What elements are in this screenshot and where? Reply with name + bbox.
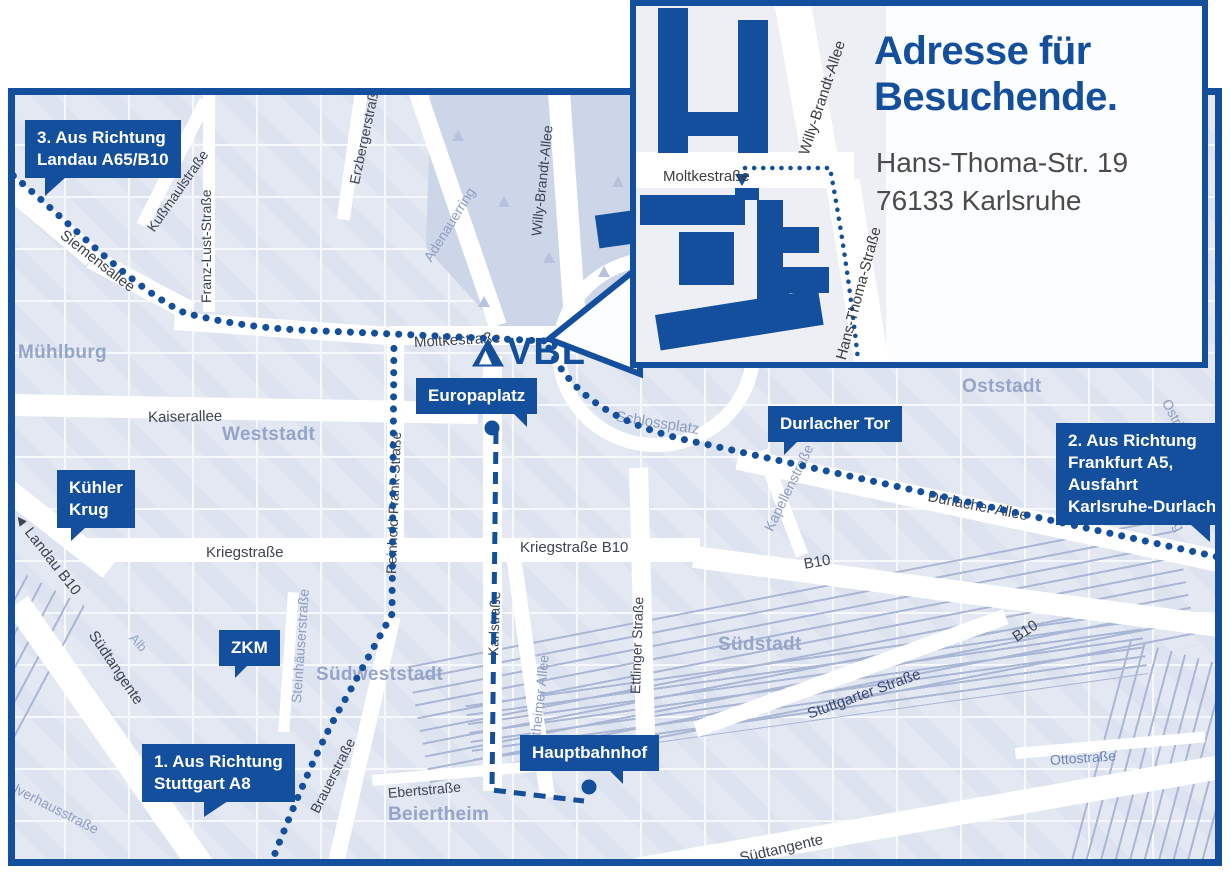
street-label-siemensallee: Siemensallee (57, 227, 138, 296)
callout-europaplatz-label: Europaplatz (428, 385, 525, 407)
callout-stuttgart-line1: 1. Aus Richtung (154, 751, 283, 773)
road-karlstrasse (483, 356, 502, 791)
inset-title-line1: Adresse für (874, 28, 1117, 74)
inset-street-label-moltkestrasse: Moltkestraße (663, 168, 750, 185)
callout-durlacher-tor: Durlacher Tor (768, 406, 902, 442)
road-moltkestrasse-west (174, 312, 403, 346)
callout-kuehler-krug: Kühler Krug (57, 470, 135, 528)
callout-durlacher-tor-label: Durlacher Tor (780, 413, 890, 435)
tree-icon (498, 196, 510, 207)
street-label-pulverhausstrasse: Pulverhausstraße (8, 773, 101, 837)
street-label-franz-lust-strasse: Franz-Lust-Straße (198, 189, 214, 303)
vbl-triangle-icon (472, 339, 504, 367)
river-label-alb: Alb (126, 630, 150, 654)
vbl-logo-text: VBL (507, 338, 586, 367)
inset-title: Adresse für Besuchende. (874, 28, 1117, 120)
street-label-ettlinger-strasse: Ettlinger Straße (627, 597, 646, 695)
inset-title-line2: Besuchende. (874, 74, 1117, 120)
area-label-suedstadt: Südstadt (718, 634, 802, 656)
area-label-beiertheim: Beiertheim (388, 804, 489, 826)
callout-hauptbahnhof: Hauptbahnhof (520, 735, 659, 771)
tree-icon (612, 176, 624, 187)
callout-stuttgart: 1. Aus Richtung Stuttgart A8 (142, 744, 295, 802)
road-brauerstrasse (324, 615, 400, 866)
inset-address: Hans-Thoma-Str. 19 76133 Karlsruhe (876, 144, 1128, 220)
street-label-karlstrasse: Karlstraße (485, 591, 503, 656)
street-label-kriegstrasse-b10: Kriegstraße B10 (520, 539, 628, 556)
callout-kuehler-krug-line2: Krug (69, 499, 123, 521)
callout-frankfurt-line2: Frankfurt A5, (1068, 452, 1216, 474)
inset-address-line1: Hans-Thoma-Str. 19 (876, 144, 1128, 182)
road-kaiserallee (8, 394, 478, 424)
area-label-oststadt: Oststadt (962, 376, 1041, 398)
tree-icon (543, 252, 555, 263)
tree-icon (452, 130, 464, 141)
callout-landau-line2: Landau A65/B10 (37, 149, 169, 171)
callout-zkm-label: ZKM (231, 637, 268, 659)
vbl-logo: VBL (472, 338, 586, 367)
callout-landau-line1: 3. Aus Richtung (37, 127, 169, 149)
tree-icon (478, 296, 490, 307)
callout-frankfurt-line4: Karlsruhe-Durlach (1068, 496, 1216, 518)
street-label-kaiserallee: Kaiserallee (148, 408, 223, 426)
callout-hauptbahnhof-label: Hauptbahnhof (532, 742, 647, 764)
callout-zkm: ZKM (219, 630, 280, 666)
callout-frankfurt: 2. Aus Richtung Frankfurt A5, Ausfahrt K… (1056, 423, 1222, 525)
area-label-suedweststadt: Südweststadt (316, 664, 443, 686)
inset-address-line2: 76133 Karlsruhe (876, 182, 1128, 220)
hauptbahnhof-stop-dot (582, 780, 597, 795)
street-label-kriegstrasse: Kriegstraße (206, 544, 284, 561)
callout-europaplatz: Europaplatz (416, 378, 537, 414)
area-label-weststadt: Weststadt (222, 424, 315, 446)
inset-address-panel: Moltkestraße Willy-Brandt-Allee Hans-Tho… (630, 0, 1208, 368)
callout-landau: 3. Aus Richtung Landau A65/B10 (25, 120, 181, 178)
callout-stuttgart-line2: Stuttgart A8 (154, 773, 283, 795)
callout-frankfurt-line1: 2. Aus Richtung (1068, 430, 1216, 452)
tree-icon (598, 266, 610, 277)
callout-frankfurt-line3: Ausfahrt (1068, 474, 1216, 496)
area-label-muehlburg: Mühlburg (18, 342, 107, 364)
callout-kuehler-krug-line1: Kühler (69, 477, 123, 499)
vbl-directions-map: Siemensallee Kußmaulstraße Franz-Lust-St… (0, 0, 1230, 874)
